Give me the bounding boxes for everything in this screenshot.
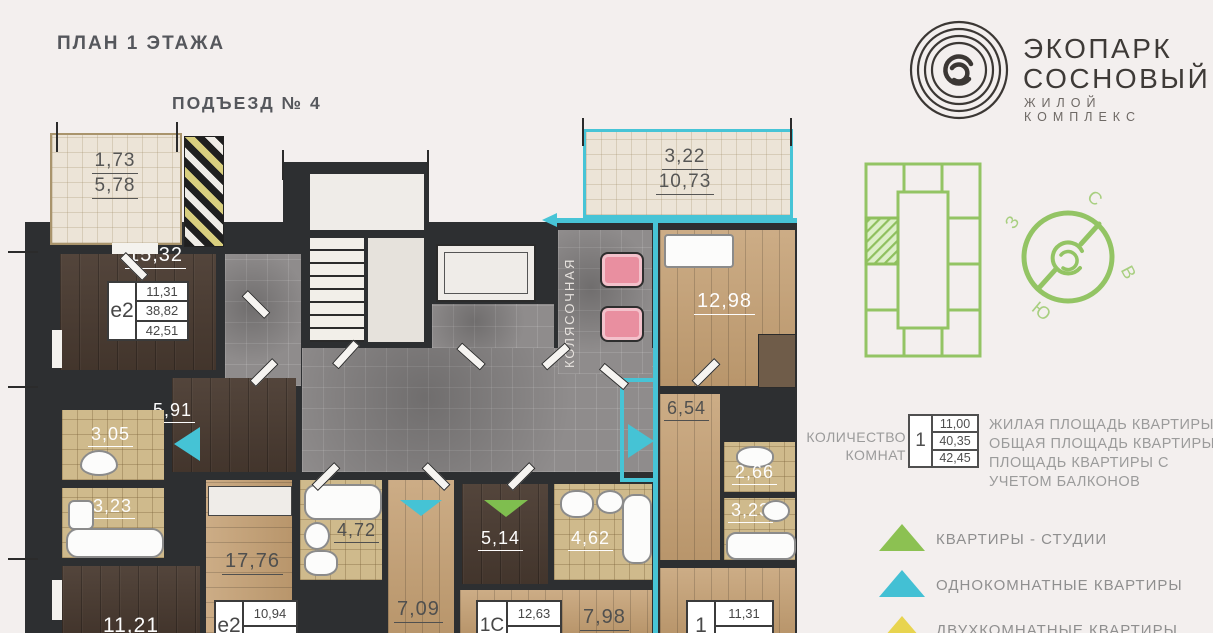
dimension-tick [8, 558, 38, 560]
window-icon [52, 330, 62, 368]
balcony-right-areas: 3,2210,73 [640, 146, 730, 195]
building-minimap [858, 150, 998, 365]
dimension-tick [8, 251, 38, 253]
bath-4-62-label: 4,62 [568, 528, 613, 551]
bathtub-icon [622, 494, 652, 564]
dimension-tick [8, 386, 38, 388]
apartment-card-e2-left[interactable]: е2 11,31 38,82 42,51 [107, 281, 189, 341]
page-title: ПЛАН 1 ЭТАЖА [57, 33, 225, 55]
room-5-14-label: 5,14 [478, 528, 523, 551]
selected-apartment-entry-bracket [620, 378, 658, 482]
room-12-98-label: 12,98 [694, 290, 755, 315]
one-room-marker-icon [174, 427, 200, 461]
one-room-legend-label: ОДНОКОМНАТНЫЕ КВАРТИРЫ [936, 577, 1183, 594]
living-area-label: ЖИЛАЯ ПЛОЩАДЬ КВАРТИРЫ [989, 416, 1213, 435]
sink-icon [68, 500, 94, 530]
toilet-icon [80, 450, 118, 476]
stroller-icon [600, 252, 644, 288]
elevator [436, 244, 536, 302]
elevator-hall [432, 304, 554, 348]
dimension-tick [282, 150, 284, 180]
window-icon [112, 243, 158, 254]
dimension-tick [427, 150, 429, 180]
bathtub-icon [726, 532, 796, 560]
room-11-21-label: 11,21 [100, 614, 162, 633]
wc-2-66-label: 2,66 [732, 462, 777, 485]
toilet-icon [304, 550, 338, 576]
room-7-98-label: 7,98 [580, 606, 629, 631]
wc-3-05-label: 3,05 [88, 424, 133, 447]
bath-4-72-label: 4,72 [334, 520, 379, 543]
studio-legend-label: КВАРТИРЫ - СТУДИИ [936, 531, 1107, 548]
logo-name-line1: ЭКОПАРК [1023, 34, 1172, 63]
bath-3-23-left-label: 3,23 [90, 496, 135, 519]
apartment-card-1s[interactable]: 1С 12,63 30,37 [476, 600, 562, 633]
dimension-arrow-icon [542, 213, 557, 227]
kitchen-counter [208, 486, 292, 516]
stroller-icon [600, 306, 644, 342]
stair-vestibule [310, 174, 424, 230]
dimension-tick [176, 122, 178, 152]
apartment-card-e2-bottom[interactable]: е2 10,94 40,51 [214, 600, 298, 633]
bathtub-icon [66, 528, 164, 558]
with-balcony-area-label: ПЛОЩАДЬ КВАРТИРЫ С УЧЕТОМ БАЛКОНОВ [989, 454, 1213, 492]
area-labels-block: ЖИЛАЯ ПЛОЩАДЬ КВАРТИРЫ ОБЩАЯ ПЛОЩАДЬ КВА… [989, 416, 1213, 491]
two-room-legend-label: ДВУХКОМНАТНЫЕ КВАРТИРЫ [936, 622, 1178, 633]
studio-marker-icon [484, 500, 528, 517]
hall-6-54-label: 6,54 [664, 398, 709, 421]
toilet-icon [560, 490, 594, 518]
sink-icon [596, 490, 624, 514]
entrance-title: ПОДЪЕЗД № 4 [172, 93, 322, 114]
apartment-card-1[interactable]: 1 11,31 36,72 [686, 600, 774, 633]
dimension-tick [790, 118, 792, 146]
dimension-tick [582, 118, 584, 146]
one-room-legend-icon [879, 570, 925, 597]
compass-east-label: В [1116, 262, 1140, 282]
rooms-count-label: КОЛИЧЕСТВО КОМНАТ [800, 428, 906, 464]
minimap-current-section[interactable] [866, 218, 898, 264]
total-area-label: ОБЩАЯ ПЛОЩАДЬ КВАРТИРЫ [989, 435, 1213, 454]
legend-sample-card: 1 11,00 40,35 42,45 [908, 414, 979, 468]
balcony-left-areas: 1,735,78 [80, 150, 150, 199]
hall-7-09-label: 7,09 [394, 598, 443, 623]
one-room-marker-icon [400, 500, 442, 516]
stair-landing [368, 238, 424, 342]
sink-icon [762, 500, 790, 522]
wardrobe-icon [758, 334, 796, 388]
kitchen-17-76-label: 17,76 [222, 550, 283, 575]
logo-tagline: ЖИЛОЙ КОМПЛЕКС [1024, 96, 1213, 124]
two-room-legend-icon [879, 616, 925, 633]
sink-icon [304, 522, 330, 550]
selected-apartment-outline [556, 218, 797, 223]
floor-plan-page: ПЛАН 1 ЭТАЖА ПОДЪЕЗД № 4 ЭКОПАРК СОСНОВЫ… [0, 0, 1213, 633]
logo-name-line2: СОСНОВЫЙ [1023, 64, 1210, 93]
logo-rings-icon [905, 16, 1013, 124]
dimension-tick [56, 122, 58, 152]
compass-icon [1018, 207, 1118, 307]
window-icon [52, 580, 62, 620]
stairs [310, 238, 364, 342]
bed-icon [664, 234, 734, 268]
studio-legend-icon [879, 524, 925, 551]
entrance-ramp-hazard-stripes [184, 136, 224, 247]
